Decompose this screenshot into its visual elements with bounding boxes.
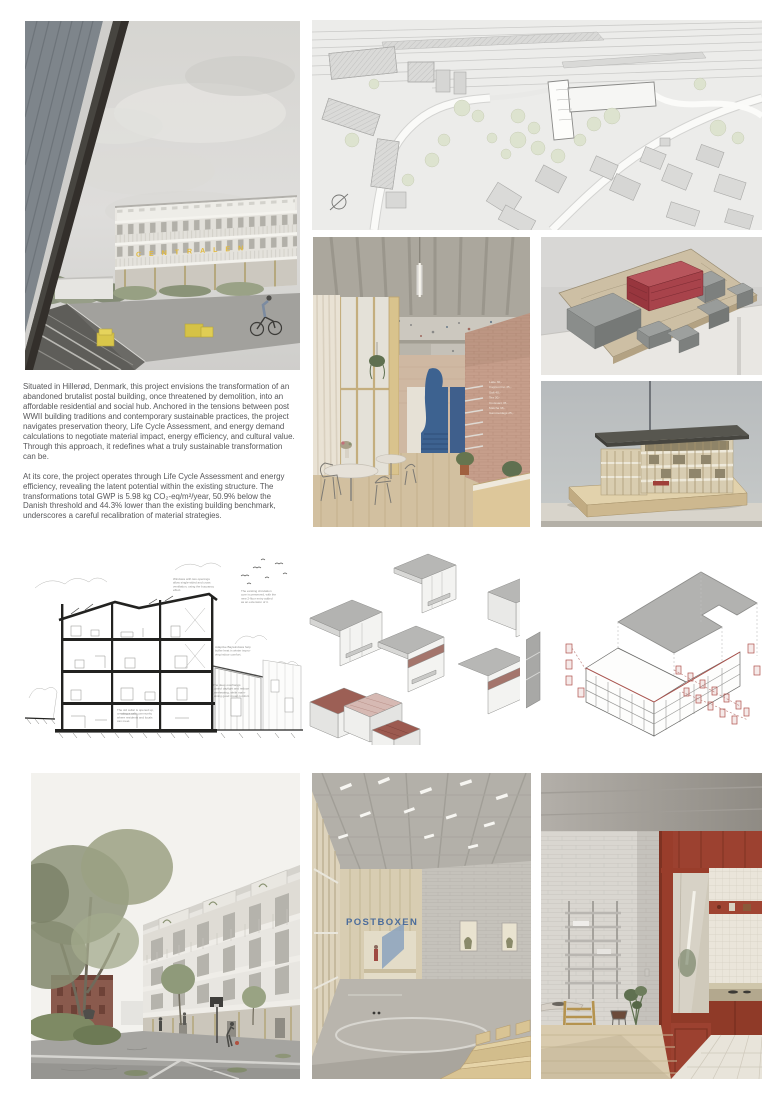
hall-render-figure: POSTBOXEN xyxy=(312,773,531,1079)
building-model-photo xyxy=(541,381,762,527)
courtyard-render xyxy=(31,773,300,1079)
stair-hall xyxy=(399,355,465,453)
cafe-interior-render: Latte 30,- Cappuccino 35,- Saft 40,- Tea… xyxy=(313,237,530,527)
hall-ceiling xyxy=(312,773,531,869)
portfolio-board: CENTRALEN xyxy=(0,0,780,1103)
red-kitchen-render xyxy=(541,773,762,1079)
timber-model xyxy=(595,425,749,495)
section-drawing: Windows with two openings allow single-s… xyxy=(25,548,303,745)
construction-detail-axos xyxy=(306,548,520,745)
postboxen-sign: POSTBOXEN xyxy=(346,917,418,928)
hero-render: CENTRALEN xyxy=(25,21,300,370)
site-plan-figure xyxy=(312,20,762,230)
blue-door xyxy=(450,387,465,453)
intro-paragraph-1: Situated in Hillerød, Denmark, this proj… xyxy=(23,382,297,462)
block-wall xyxy=(422,861,531,979)
model-sign xyxy=(653,481,669,486)
figure xyxy=(374,949,378,961)
intro-text-block: Situated in Hillerød, Denmark, this proj… xyxy=(23,382,297,534)
exploded-axonometric xyxy=(526,548,765,745)
site-model-photo xyxy=(541,237,762,375)
edge-fragment xyxy=(526,632,540,708)
section-drawing-figure: Windows with two openings allow single-s… xyxy=(25,548,303,745)
back-wall: POSTBOXEN xyxy=(340,861,531,979)
pendant-light-icon xyxy=(419,263,421,297)
kitchen-render-figure xyxy=(541,773,762,1079)
detail-axos-figure xyxy=(306,548,520,745)
glazed-wall xyxy=(313,295,399,479)
intro-paragraph-2: At its core, the project operates throug… xyxy=(23,472,297,522)
glass-panel xyxy=(673,873,709,1015)
site-plan xyxy=(312,20,762,230)
courtyard-render-figure xyxy=(31,773,300,1079)
site-model-figure xyxy=(541,237,762,375)
exploded-axo-figure xyxy=(526,548,765,745)
curtain xyxy=(313,295,340,479)
building-model-figure xyxy=(541,381,762,527)
hero-render-figure: CENTRALEN xyxy=(25,21,300,370)
red-shelf xyxy=(709,901,762,914)
cafe-render-figure: Latte 30,- Cappuccino 35,- Saft 40,- Tea… xyxy=(313,237,530,527)
centralen-building: CENTRALEN xyxy=(115,195,297,296)
postboxen-hall-render: POSTBOXEN xyxy=(312,773,531,1079)
